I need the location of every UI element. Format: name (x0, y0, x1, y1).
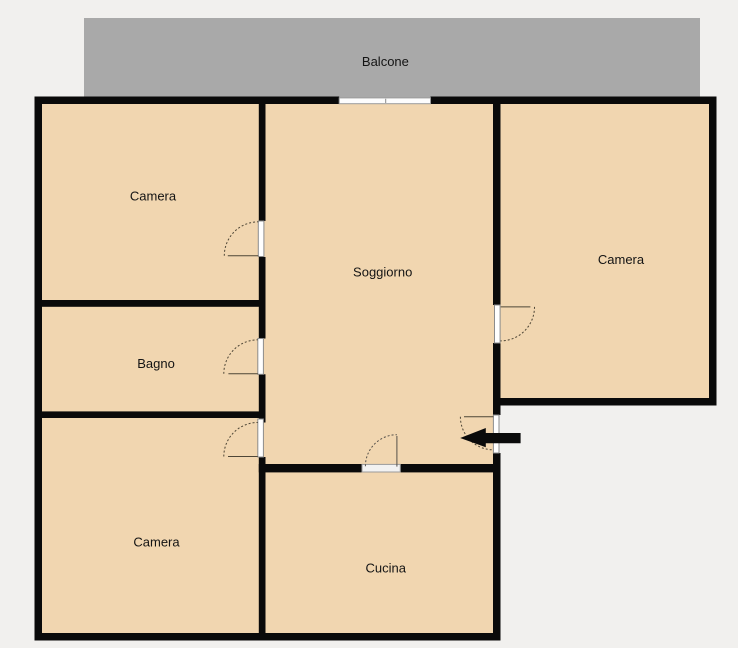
svg-text:Camera: Camera (598, 252, 645, 267)
svg-text:Balcone: Balcone (362, 54, 409, 69)
svg-text:Bagno: Bagno (137, 356, 175, 371)
svg-text:Camera: Camera (130, 189, 177, 204)
svg-text:Cucina: Cucina (365, 561, 406, 576)
svg-text:Soggiorno: Soggiorno (353, 265, 412, 280)
svg-text:Camera: Camera (133, 534, 180, 549)
